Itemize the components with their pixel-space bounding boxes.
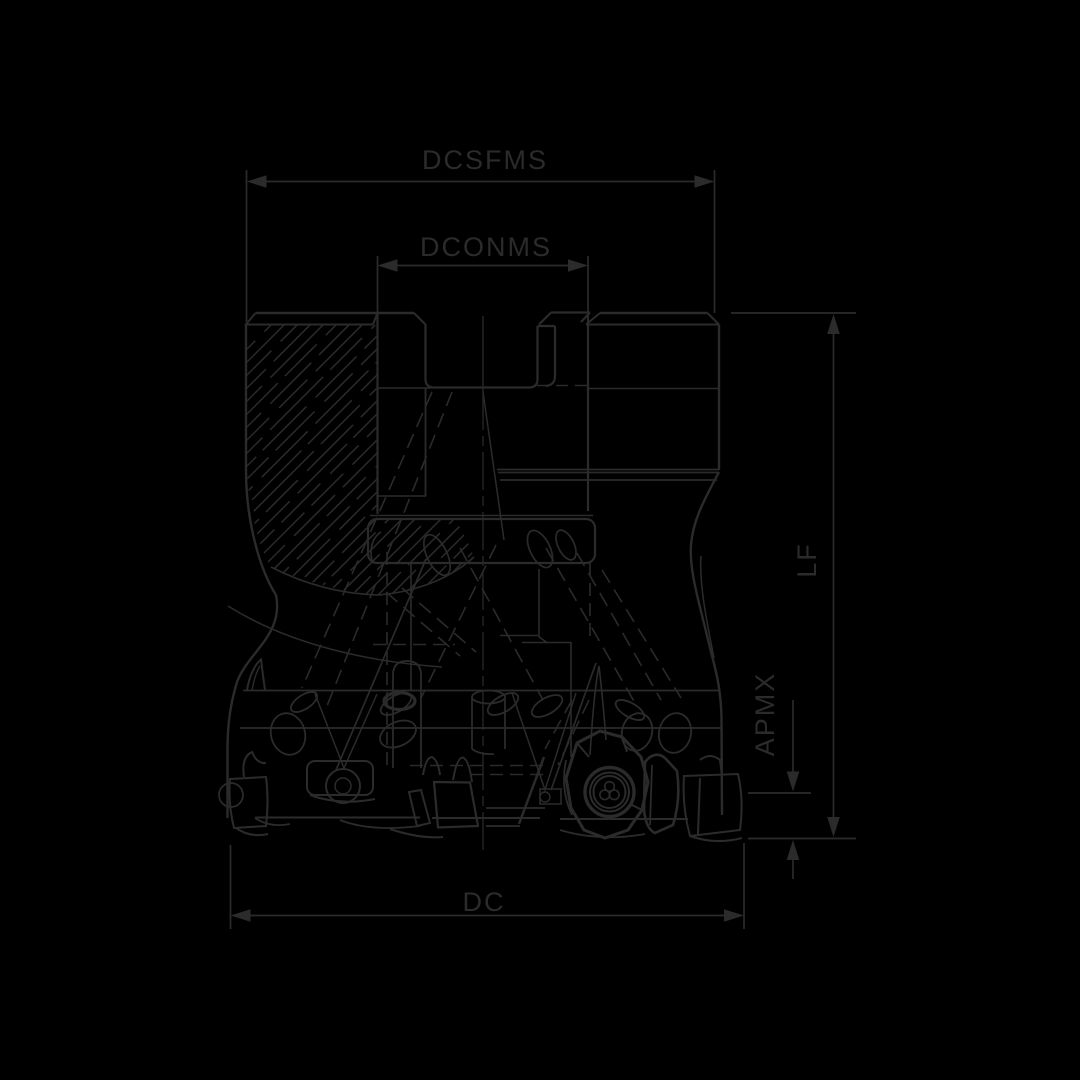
svg-text:LF: LF (792, 542, 822, 578)
svg-text:DCONMS: DCONMS (420, 232, 552, 262)
svg-text:APMX: APMX (750, 672, 780, 757)
svg-text:DC: DC (463, 887, 506, 917)
svg-text:DCSFMS: DCSFMS (422, 145, 548, 175)
